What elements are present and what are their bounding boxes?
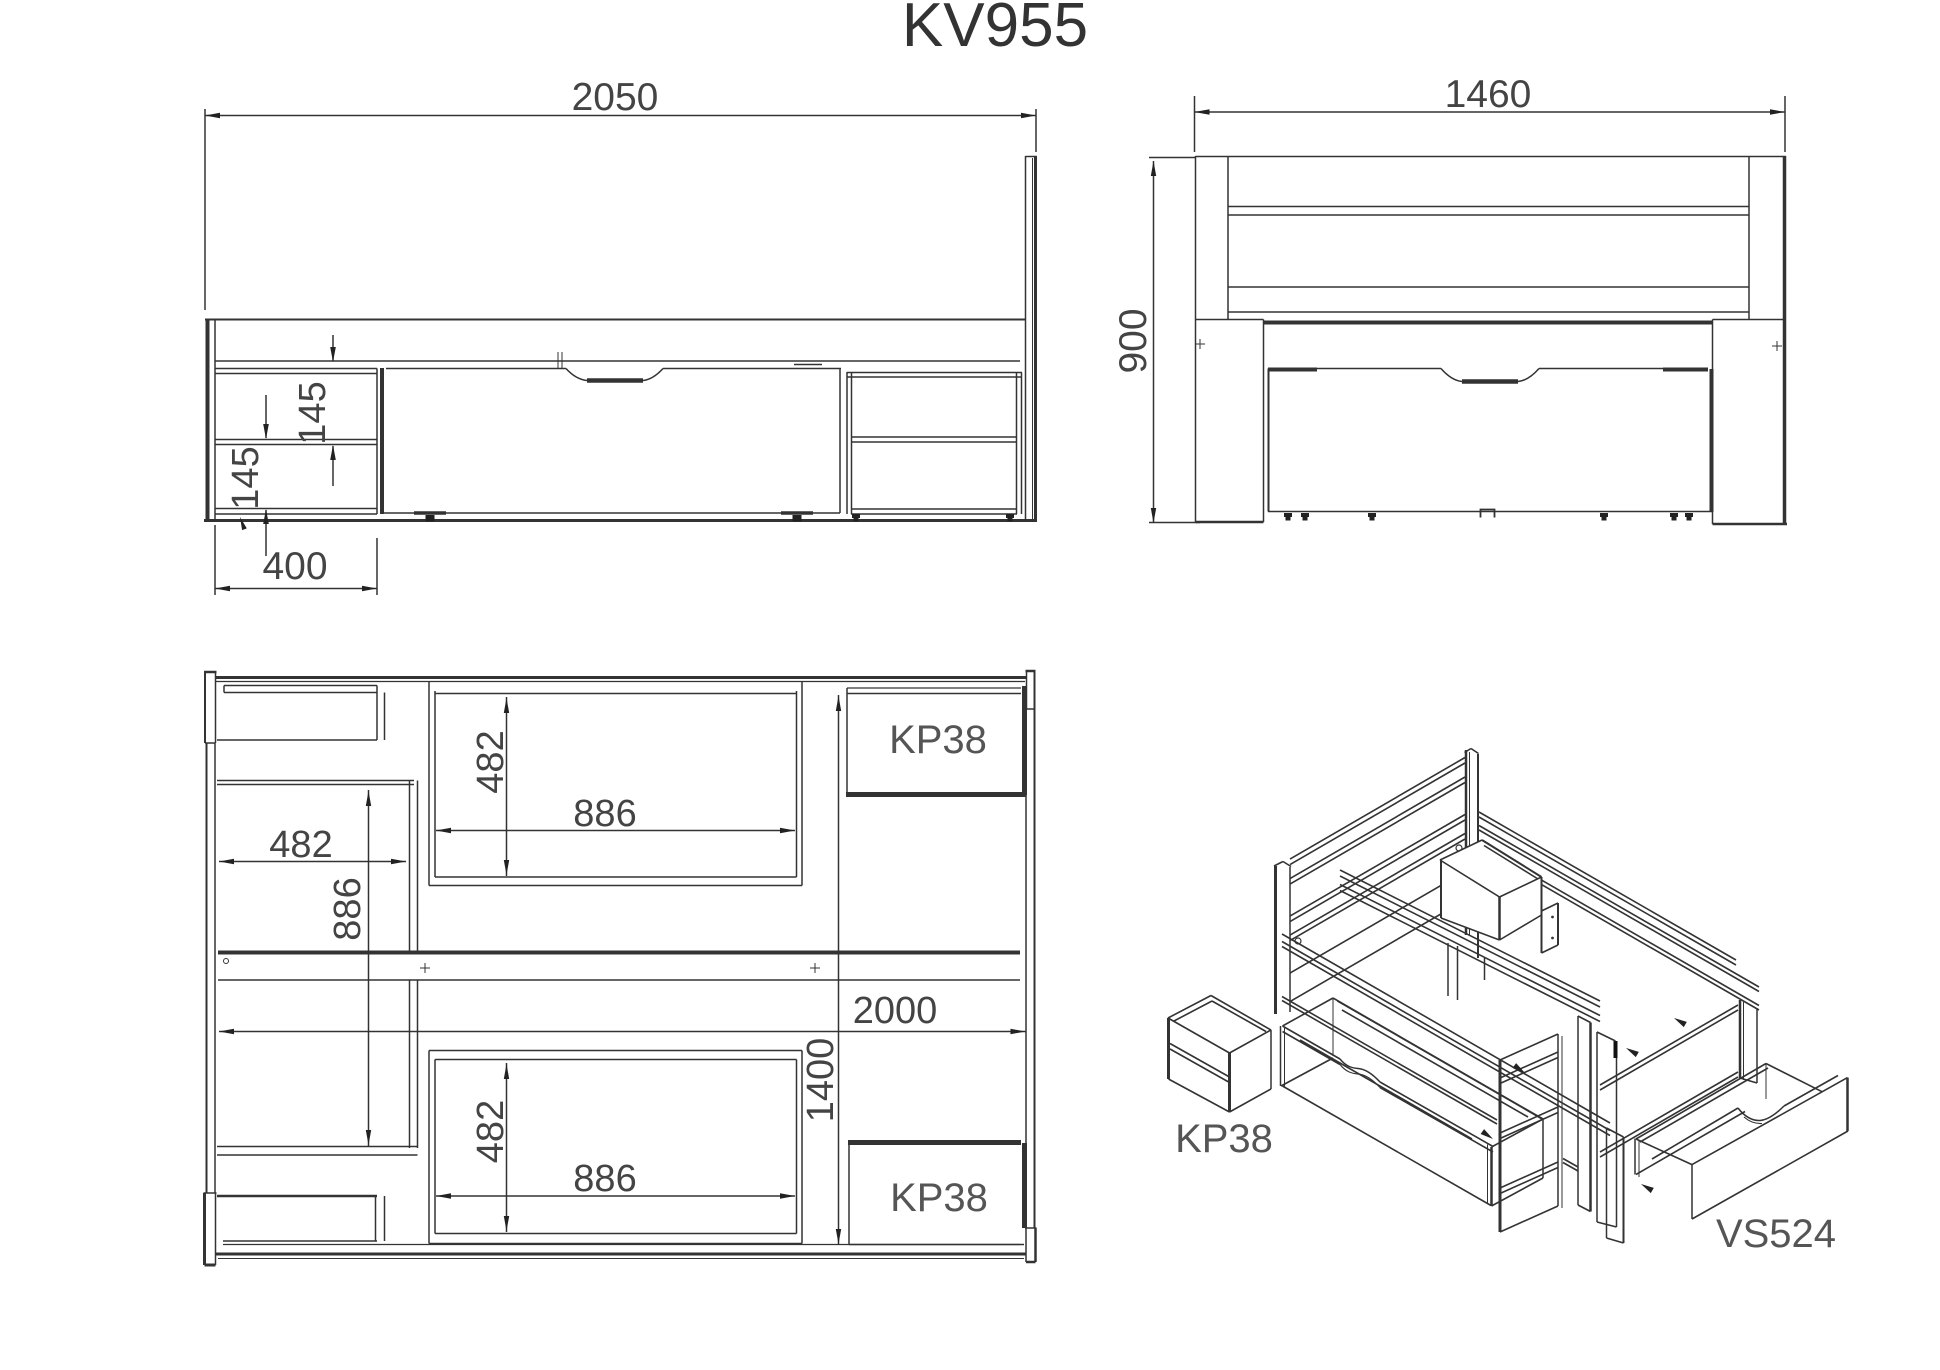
svg-text:2050: 2050 (572, 76, 659, 119)
svg-text:KP38: KP38 (889, 718, 987, 762)
svg-text:KP38: KP38 (890, 1176, 988, 1220)
svg-text:482: 482 (470, 1100, 512, 1163)
svg-text:886: 886 (573, 793, 636, 835)
svg-text:VS524: VS524 (1716, 1212, 1836, 1256)
svg-text:2000: 2000 (853, 990, 938, 1032)
svg-text:KP38: KP38 (1175, 1117, 1273, 1161)
svg-text:145: 145 (292, 381, 334, 444)
svg-text:886: 886 (573, 1158, 636, 1200)
svg-text:482: 482 (269, 824, 332, 866)
svg-text:1460: 1460 (1445, 73, 1532, 116)
svg-text:886: 886 (327, 877, 369, 940)
svg-text:KV955: KV955 (902, 0, 1088, 60)
svg-text:900: 900 (1112, 308, 1155, 373)
svg-text:400: 400 (262, 545, 327, 588)
svg-text:482: 482 (470, 730, 512, 793)
svg-text:145: 145 (225, 446, 267, 509)
svg-text:1400: 1400 (800, 1038, 842, 1123)
